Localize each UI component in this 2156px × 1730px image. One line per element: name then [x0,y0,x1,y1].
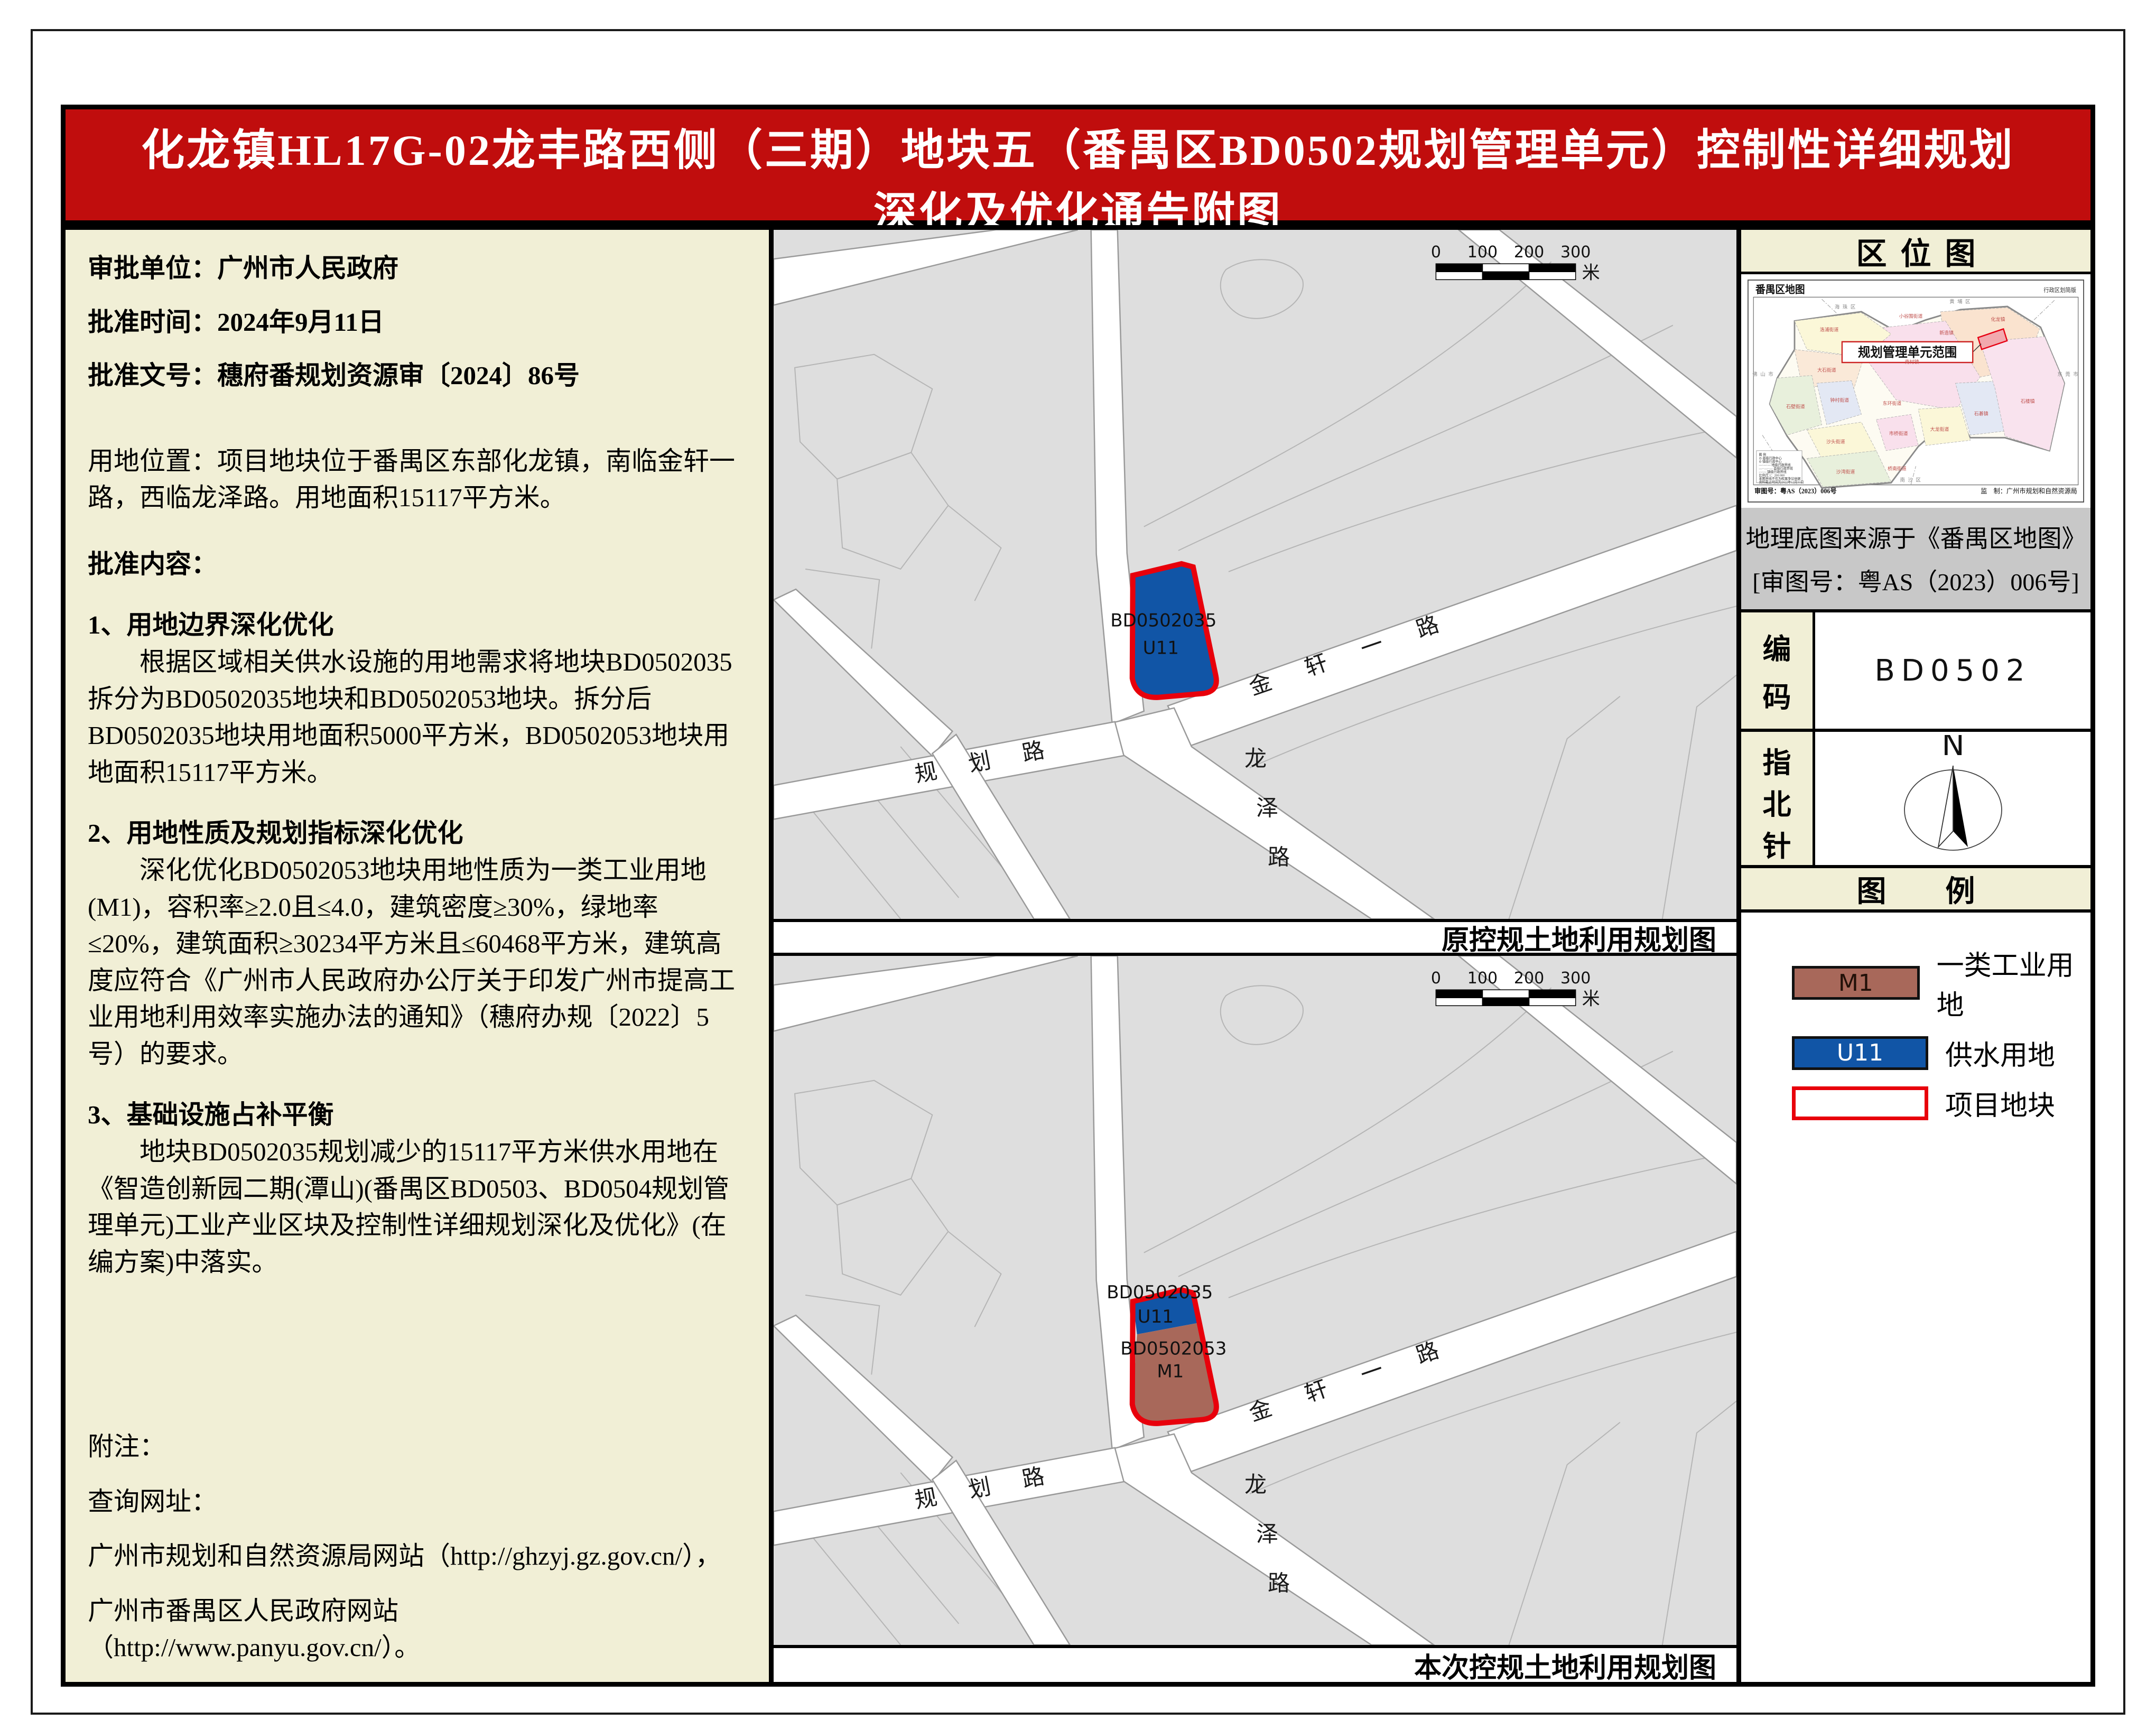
svg-text:300: 300 [1560,243,1591,262]
svg-text:0: 0 [1431,969,1441,988]
item2-heading: 2、用地性质及规划指标深化优化 [88,815,744,852]
item1-body: 根据区域相关供水设施的用地需求将地块BD0502035拆分为BD0502035地… [88,644,744,790]
inset-mini-legend: 图 例◎ 县级行政中心⊙ 镇级行政中心—·—·— 地级行政界线—··—··— 县… [1757,451,1804,485]
query-heading: 查询网址： [88,1483,744,1520]
parcel1-use-label: U11 [1138,1306,1174,1327]
note-heading: 附注： [88,1428,744,1465]
svg-text:200: 200 [1514,969,1544,988]
svg-text:300: 300 [1560,969,1591,988]
inset-label: 南沙区 [1900,477,1924,483]
item3-heading: 3、基础设施占补平衡 [88,1096,744,1133]
compass-cell: N [1815,732,2090,865]
content-frame: 审批单位：广州市人民政府 批准时间：2024年9月11日 批准文号：穗府番规划资… [61,225,2095,1687]
inset-label: 资料截止时间为2022年12月31日 [1759,480,1804,484]
u11-label: 供水用地 [1945,1033,2055,1073]
site-location: 用地位置：项目地块位于番禺区东部化龙镇，南临金轩一路，西临龙泽路。用地面积151… [88,443,744,516]
svg-text:N: N [1941,735,1964,762]
legend-item-u11: U11 供水用地 [1792,1033,2090,1073]
code-label: 编 码 [1741,612,1815,729]
svg-text:200: 200 [1514,243,1544,262]
inset-label: 石壁街道 [1786,403,1805,409]
inset-label: 石楼镇 [2021,398,2035,404]
title-banner: 化龙镇HL17G-02龙丰路西侧（三期）地块五（番禺区BD0502规划管理单元）… [61,105,2095,225]
site-label: 项目地块 [1945,1083,2055,1123]
road-label-longze-2: 泽 [1256,795,1278,821]
query-url-1: 广州市规划和自然资源局网站（http://ghzyj.gz.gov.cn/）， [88,1538,744,1575]
inset-map-title: 番禺区地图 [1755,283,1805,296]
approval-agency: 审批单位：广州市人民政府 [88,250,744,287]
road-label-longze-3: 路 [1268,1570,1290,1596]
u11-swatch: U11 [1792,1036,1928,1070]
inset-label: 沙湾街道 [1836,469,1855,475]
inset-label: 大石街道 [1817,367,1836,373]
svg-text:0: 0 [1431,243,1441,262]
m1-swatch: M1 [1792,966,1920,1000]
geo-source-line-1: 地理底图来源于《番禺区地图》 [1746,519,2086,554]
original-plan-map: BD0502035 U11 金 轩 一 路 龙 泽 路 规 划 路 0 100 … [774,230,1736,919]
north-arrow-icon: N [1884,735,2022,862]
inset-label: 大龙街道 [1930,426,1949,432]
item2-body: 深化优化BD0502053地块用地性质为一类工业用地(M1)，容积率≥2.0且≤… [88,852,744,1072]
legend-header: 图 例 [1741,865,2090,913]
inset-footer-left: 审图号：粤AS（2023）006号 [1754,487,1837,495]
compass-label: 指 北 针 [1741,732,1815,865]
svg-text:100: 100 [1467,243,1498,262]
inset-label: 新造镇 [1939,330,1954,336]
inset-label: 洛浦街道 [1820,327,1839,332]
approval-doc-no: 批准文号：穗府番规划资源审〔2024〕86号 [88,357,744,394]
callout-label: 规划管理单元范围 [1858,345,1957,360]
parcel-use-label: U11 [1143,637,1179,658]
title-line-1: 化龙镇HL17G-02龙丰路西侧（三期）地块五（番禺区BD0502规划管理单元）… [141,115,2014,178]
compass-row: 指 北 针 N [1741,729,2090,865]
inset-label: 小谷围街道 [1899,313,1922,319]
inset-label: 海珠区 [1835,304,1858,310]
maps-column: BD0502035 U11 金 轩 一 路 龙 泽 路 规 划 路 0 100 … [774,230,1736,1682]
road-label-longze-3: 路 [1268,844,1290,870]
unit-code: BD0502 [1874,654,2031,688]
original-plan-caption: 原控规土地利用规划图 [774,919,1736,956]
approval-date: 批准时间：2024年9月11日 [88,304,744,341]
sidebar: 区位图 番禺区地图 行政区划简版 [1736,230,2090,1682]
inset-label: 钟村街道 [1830,397,1849,403]
road-label-longze-1: 龙 [1244,746,1267,771]
inset-label: 石碁镇 [1974,411,1988,416]
item1-heading: 1、用地边界深化优化 [88,607,744,644]
svg-text:100: 100 [1467,969,1498,988]
query-url-2: 广州市番禺区人民政府网站 （http://www.panyu.gov.cn/）。 [88,1593,744,1666]
parcel2-use-label: M1 [1157,1361,1184,1382]
parcel-code-label: BD0502035 [1110,610,1216,631]
inset-map-subtitle: 行政区划简版 [2043,286,2076,293]
site-swatch [1792,1086,1928,1120]
inset-label: 东莞市 [2057,371,2081,377]
geo-source-line-2: [审图号：粤AS（2023）006号] [1752,563,2079,598]
inset-label: 化龙镇 [1991,316,2005,322]
parcel1-code-label: BD0502035 [1107,1282,1213,1303]
revised-plan-caption: 本次控规土地利用规划图 [774,1645,1736,1682]
approval-content-heading: 批准内容： [88,546,744,583]
road-label-longze-2: 泽 [1256,1521,1278,1547]
inset-label: 东环街道 [1883,400,1902,406]
code-value-cell: BD0502 [1815,612,2090,729]
geo-source-note: 地理底图来源于《番禺区地图》 [审图号：粤AS（2023）006号] [1741,508,2090,609]
approval-info-panel: 审批单位：广州市人民政府 批准时间：2024年9月11日 批准文号：穗府番规划资… [66,230,774,1682]
inset-label: 南村镇 [1905,359,1919,365]
inset-label: 市桥街道 [1889,430,1908,436]
parcel2-code-label: BD0502053 [1120,1338,1226,1359]
road-label-longze-1: 龙 [1244,1472,1267,1498]
plan-notice-sheet: 化龙镇HL17G-02龙丰路西侧（三期）地块五（番禺区BD0502规划管理单元）… [0,0,2156,1730]
revised-plan-map: BD0502035 U11 BD0502053 M1 金 轩 一 路 龙 泽 路… [774,956,1736,1645]
legend-item-m1: M1 一类工业用地 [1792,943,2090,1022]
inset-label: 桥南街道 [1888,466,1907,471]
inset-label: 黄埔区 [1949,299,1973,305]
location-inset-map: 番禺区地图 行政区划简版 [1741,274,2090,508]
item3-body: 地块BD0502035规划减少的15117平方米供水用地在《智造创新园二期(潭山… [88,1133,744,1280]
scale-unit: 米 [1582,262,1600,283]
location-map-header: 区位图 [1741,230,2090,274]
footnote-block: 附注： 查询网址： 广州市规划和自然资源局网站（http://ghzyj.gz.… [88,1410,744,1666]
m1-label: 一类工业用地 [1937,943,2090,1022]
code-row: 编 码 BD0502 [1741,609,2090,729]
legend-item-site: 项目地块 [1792,1083,2090,1123]
inset-label: 沙头街道 [1826,439,1845,444]
scale-unit: 米 [1582,988,1600,1009]
legend-body: M1 一类工业用地 U11 供水用地 项目地块 [1741,913,2090,1682]
inset-label: 佛山市 [1752,371,1776,377]
inset-footer-right: 监 制：广州市规划和自然资源局 [1981,487,2077,495]
